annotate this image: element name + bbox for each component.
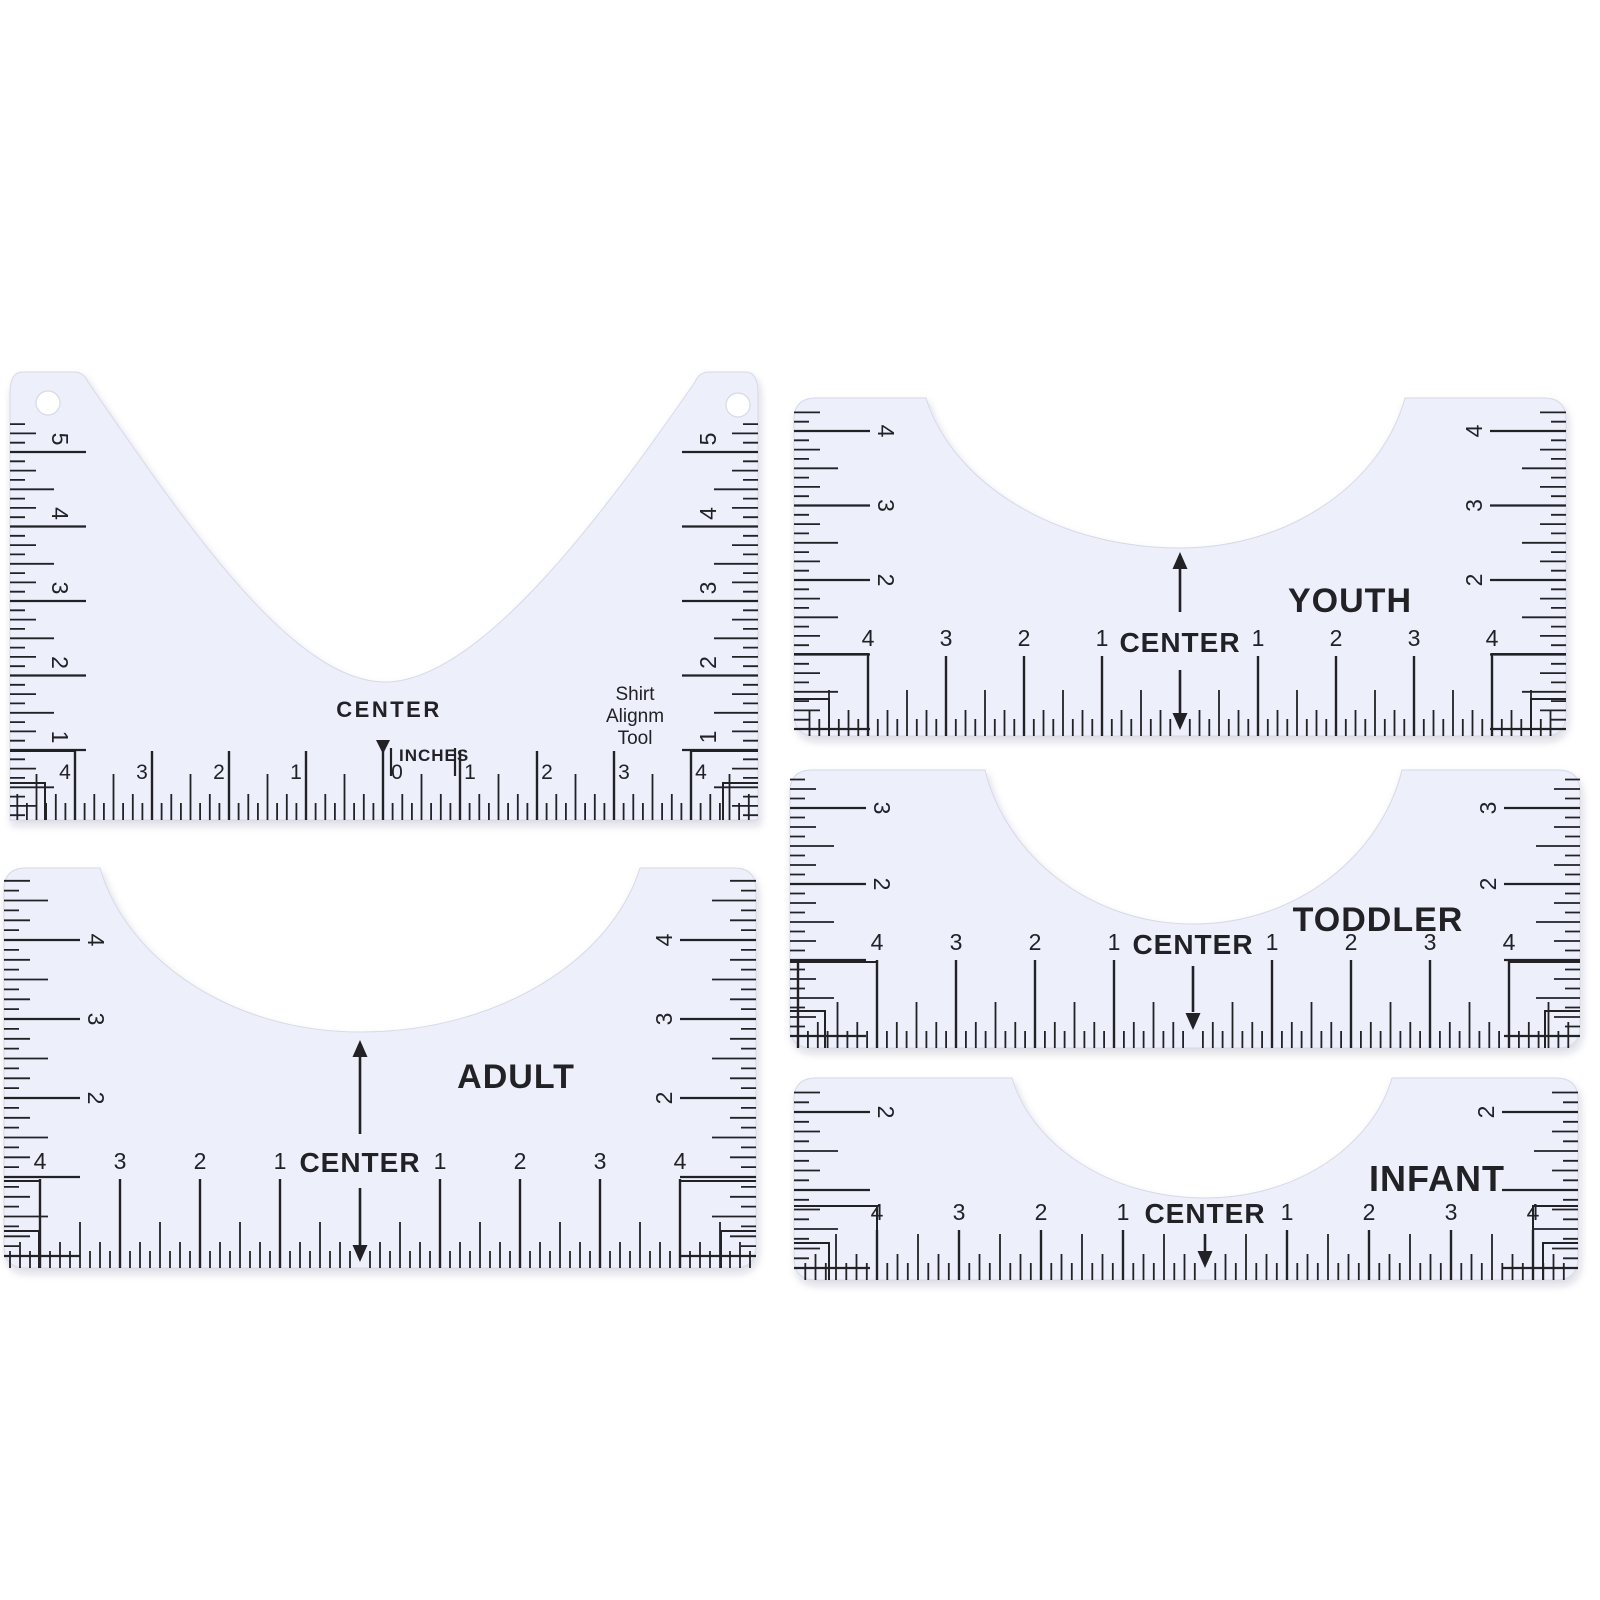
adult-right-scale-number: 4 (651, 933, 677, 946)
infant-bottom-number: 2 (1035, 1199, 1048, 1225)
youth-bottom-number: 4 (862, 625, 875, 651)
ruler-toddler: 432112343232CENTERTODDLER (790, 770, 1580, 1048)
adult-bottom-number: 4 (34, 1148, 47, 1174)
toddler-bottom-number: 4 (1503, 929, 1516, 955)
adult-bottom-number: 4 (674, 1148, 687, 1174)
infant-bottom-number: 1 (1281, 1199, 1294, 1225)
alignment-tool-hanging-hole-right (726, 393, 750, 417)
adult-bottom-number: 1 (434, 1148, 447, 1174)
adult-left-scale-number: 2 (83, 1092, 109, 1105)
adult-right-scale-number: 3 (651, 1013, 677, 1026)
adult-center-label: CENTER (299, 1147, 420, 1178)
youth-bottom-number: 1 (1096, 625, 1109, 651)
alignment-tool-right-scale-number: 3 (695, 582, 721, 595)
alignment-tool-right-scale-number: 4 (695, 507, 721, 520)
ruler-youth: 43211234432432CENTERYOUTH (794, 398, 1566, 736)
infant-size-label: INFANT (1369, 1158, 1505, 1199)
alignment-tool-inches-label: INCHES (399, 746, 469, 765)
youth-left-scale-number: 4 (873, 425, 899, 438)
youth-left-scale-number: 2 (873, 574, 899, 587)
alignment-tool-left-scale-number: 5 (47, 433, 73, 446)
toddler-bottom-number: 3 (950, 929, 963, 955)
adult-left-scale-number: 3 (83, 1013, 109, 1026)
ruler-infant: 4321123422CENTERINFANT (794, 1078, 1578, 1280)
youth-bottom-number: 2 (1330, 625, 1343, 651)
youth-right-scale-number: 2 (1461, 574, 1487, 587)
toddler-right-scale-number: 2 (1475, 878, 1501, 891)
alignment-tool-bottom-number: 2 (541, 761, 553, 784)
infant-bottom-number: 2 (1363, 1199, 1376, 1225)
youth-right-scale-number: 3 (1461, 499, 1487, 512)
ruler-alignment-tool: 4321123405432154321CENTERINCHESShirtAlig… (10, 372, 758, 820)
ruler-adult: 43211234432432CENTERADULT (4, 868, 756, 1268)
alignment-tool-bottom-number: 3 (618, 761, 630, 784)
youth-bottom-number: 1 (1252, 625, 1265, 651)
youth-size-label: YOUTH (1288, 582, 1412, 620)
alignment-tool-bottom-number: 3 (136, 761, 148, 784)
alignment-tool-left-scale-number: 3 (47, 582, 73, 595)
adult-size-label: ADULT (457, 1058, 575, 1096)
alignment-tool-left-scale-number: 1 (47, 731, 73, 744)
toddler-bottom-number: 1 (1108, 929, 1121, 955)
adult-bottom-number: 3 (114, 1148, 127, 1174)
adult-bottom-number: 3 (594, 1148, 607, 1174)
youth-bottom-number: 3 (940, 625, 953, 651)
infant-center-label: CENTER (1144, 1198, 1265, 1229)
alignment-tool-right-scale-number: 1 (695, 731, 721, 744)
infant-left-scale-number: 2 (873, 1106, 899, 1119)
tshirt-ruler-set-photo: 4321123405432154321CENTERINCHESShirtAlig… (0, 0, 1600, 1600)
infant-bottom-number: 3 (953, 1199, 966, 1225)
alignment-tool-left-scale-number: 2 (47, 656, 73, 669)
toddler-right-scale-number: 3 (1475, 802, 1501, 815)
alignment-tool-right-scale-number: 2 (695, 656, 721, 669)
alignment-tool-tool-name-line: Alignm (606, 706, 664, 727)
youth-bottom-number: 2 (1018, 625, 1031, 651)
youth-center-label: CENTER (1119, 627, 1240, 658)
alignment-tool-bottom-number: 4 (695, 761, 707, 784)
toddler-size-label: TODDLER (1293, 901, 1464, 939)
youth-left-scale-number: 3 (873, 499, 899, 512)
alignment-tool-center-label: CENTER (336, 697, 441, 722)
product-photo: 4321123405432154321CENTERINCHESShirtAlig… (0, 0, 1600, 1600)
adult-body (4, 868, 756, 1268)
adult-bottom-number: 2 (514, 1148, 527, 1174)
infant-bottom-number: 3 (1445, 1199, 1458, 1225)
toddler-bottom-number: 1 (1266, 929, 1279, 955)
toddler-center-label: CENTER (1132, 929, 1253, 960)
alignment-tool-tool-name-line: Tool (618, 728, 653, 749)
alignment-tool-tool-name-line: Shirt (615, 684, 655, 705)
alignment-tool-bottom-number: 1 (290, 761, 302, 784)
infant-bottom-number: 1 (1117, 1199, 1130, 1225)
alignment-tool-bottom-number: 2 (213, 761, 225, 784)
alignment-tool-hanging-hole-left (36, 391, 60, 415)
adult-bottom-number: 2 (194, 1148, 207, 1174)
adult-left-scale-number: 4 (83, 934, 109, 947)
alignment-tool-left-scale-number: 4 (47, 507, 73, 520)
youth-bottom-number: 3 (1408, 625, 1421, 651)
alignment-tool-right-scale-number: 5 (695, 433, 721, 446)
infant-right-scale-number: 2 (1473, 1106, 1499, 1119)
toddler-left-scale-number: 3 (869, 802, 895, 815)
adult-bottom-number: 1 (274, 1148, 287, 1174)
youth-right-scale-number: 4 (1461, 424, 1487, 437)
toddler-bottom-number: 4 (871, 929, 884, 955)
adult-right-scale-number: 2 (651, 1092, 677, 1105)
alignment-tool-bottom-number: 4 (59, 761, 71, 784)
toddler-left-scale-number: 2 (869, 878, 895, 891)
youth-bottom-number: 4 (1486, 625, 1499, 651)
toddler-bottom-number: 2 (1029, 929, 1042, 955)
